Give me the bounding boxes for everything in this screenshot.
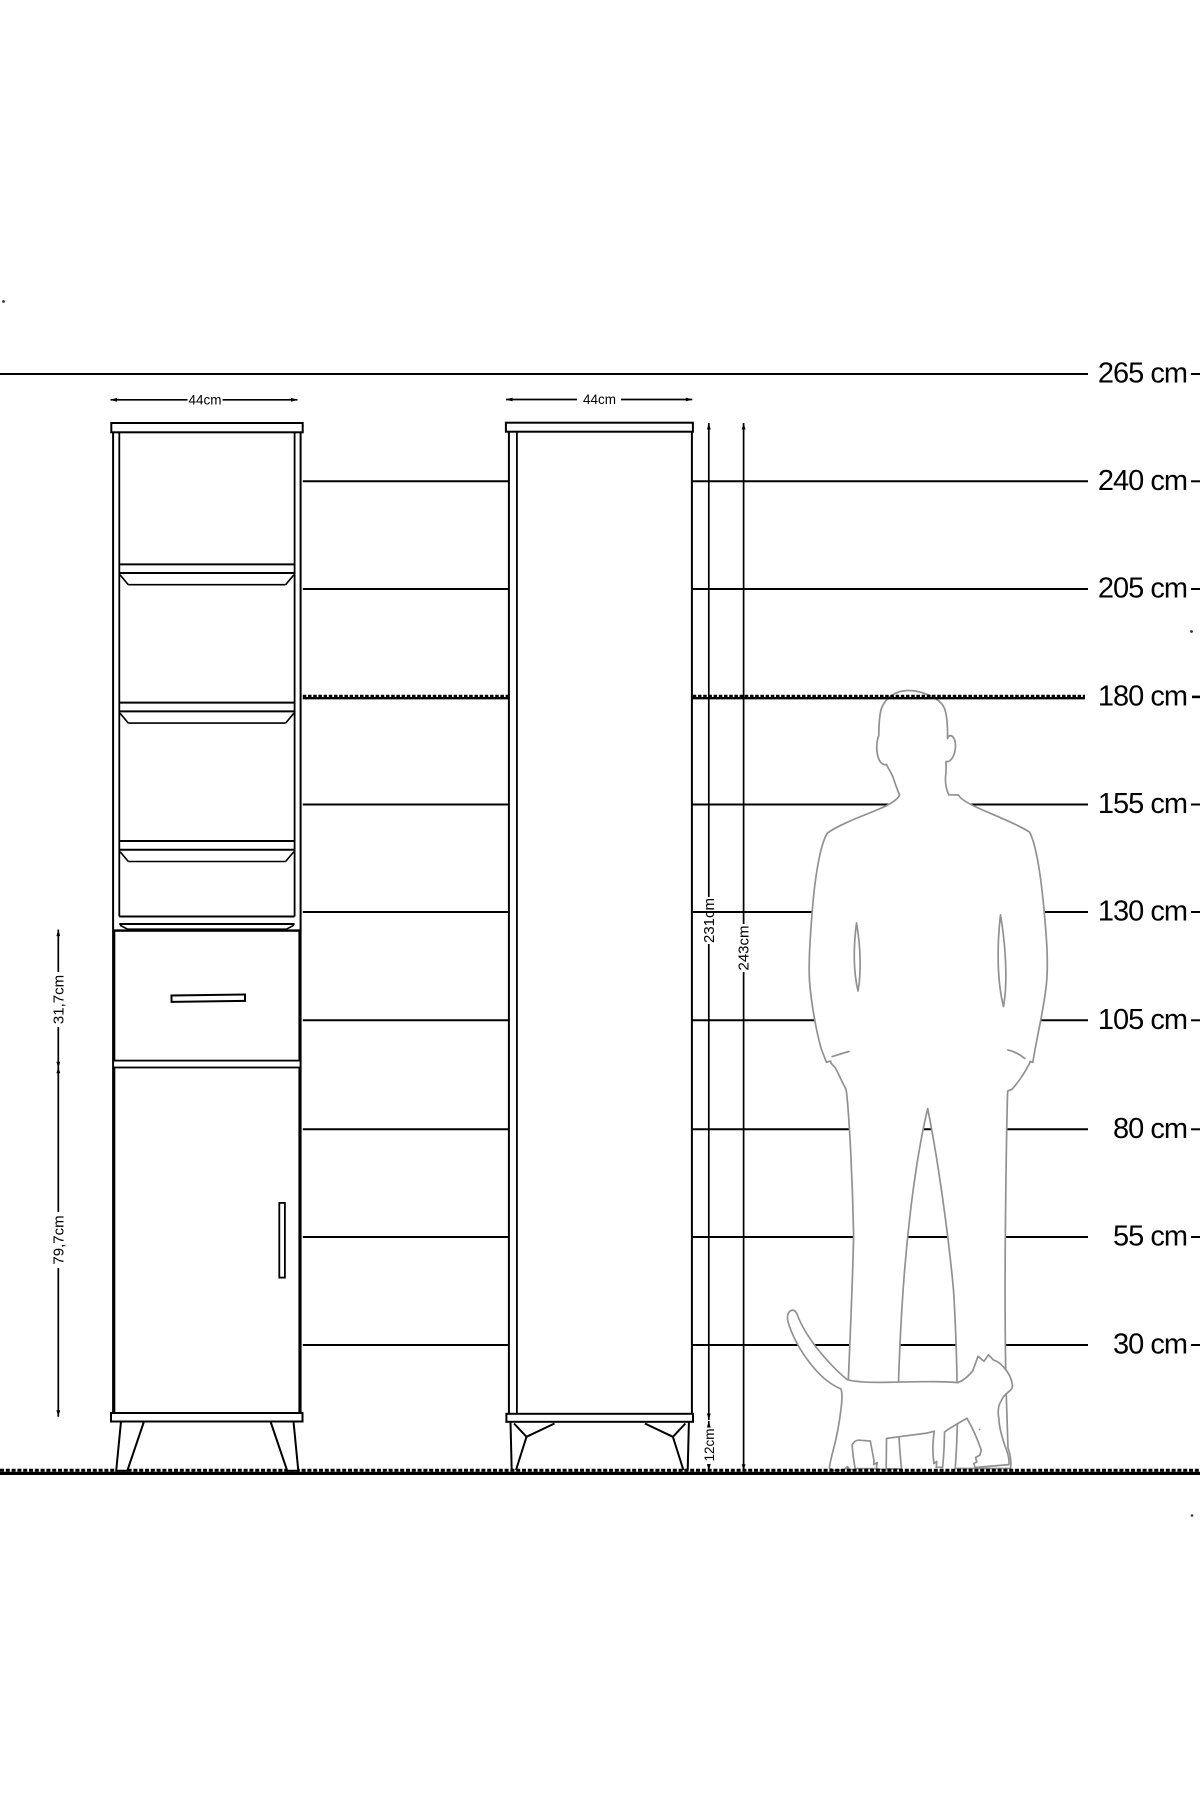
- svg-text:44cm: 44cm: [583, 392, 616, 407]
- svg-text:243cm: 243cm: [736, 925, 753, 970]
- svg-text:12cm: 12cm: [702, 1428, 717, 1461]
- svg-text:231cm: 231cm: [701, 898, 718, 943]
- svg-text:80 cm: 80 cm: [1113, 1113, 1187, 1145]
- svg-text:265 cm: 265 cm: [1098, 358, 1187, 390]
- svg-text:180 cm: 180 cm: [1098, 680, 1187, 712]
- svg-text:31,7cm: 31,7cm: [50, 975, 67, 1024]
- svg-text:55 cm: 55 cm: [1113, 1221, 1187, 1253]
- svg-text:205 cm: 205 cm: [1098, 573, 1187, 605]
- svg-text:105 cm: 105 cm: [1098, 1004, 1187, 1036]
- svg-text:130 cm: 130 cm: [1098, 896, 1187, 928]
- svg-text:30 cm: 30 cm: [1113, 1329, 1187, 1361]
- svg-text:240 cm: 240 cm: [1098, 465, 1187, 497]
- svg-text:155 cm: 155 cm: [1098, 788, 1187, 820]
- svg-text:44cm: 44cm: [188, 392, 221, 407]
- svg-text:79,7cm: 79,7cm: [50, 1215, 67, 1264]
